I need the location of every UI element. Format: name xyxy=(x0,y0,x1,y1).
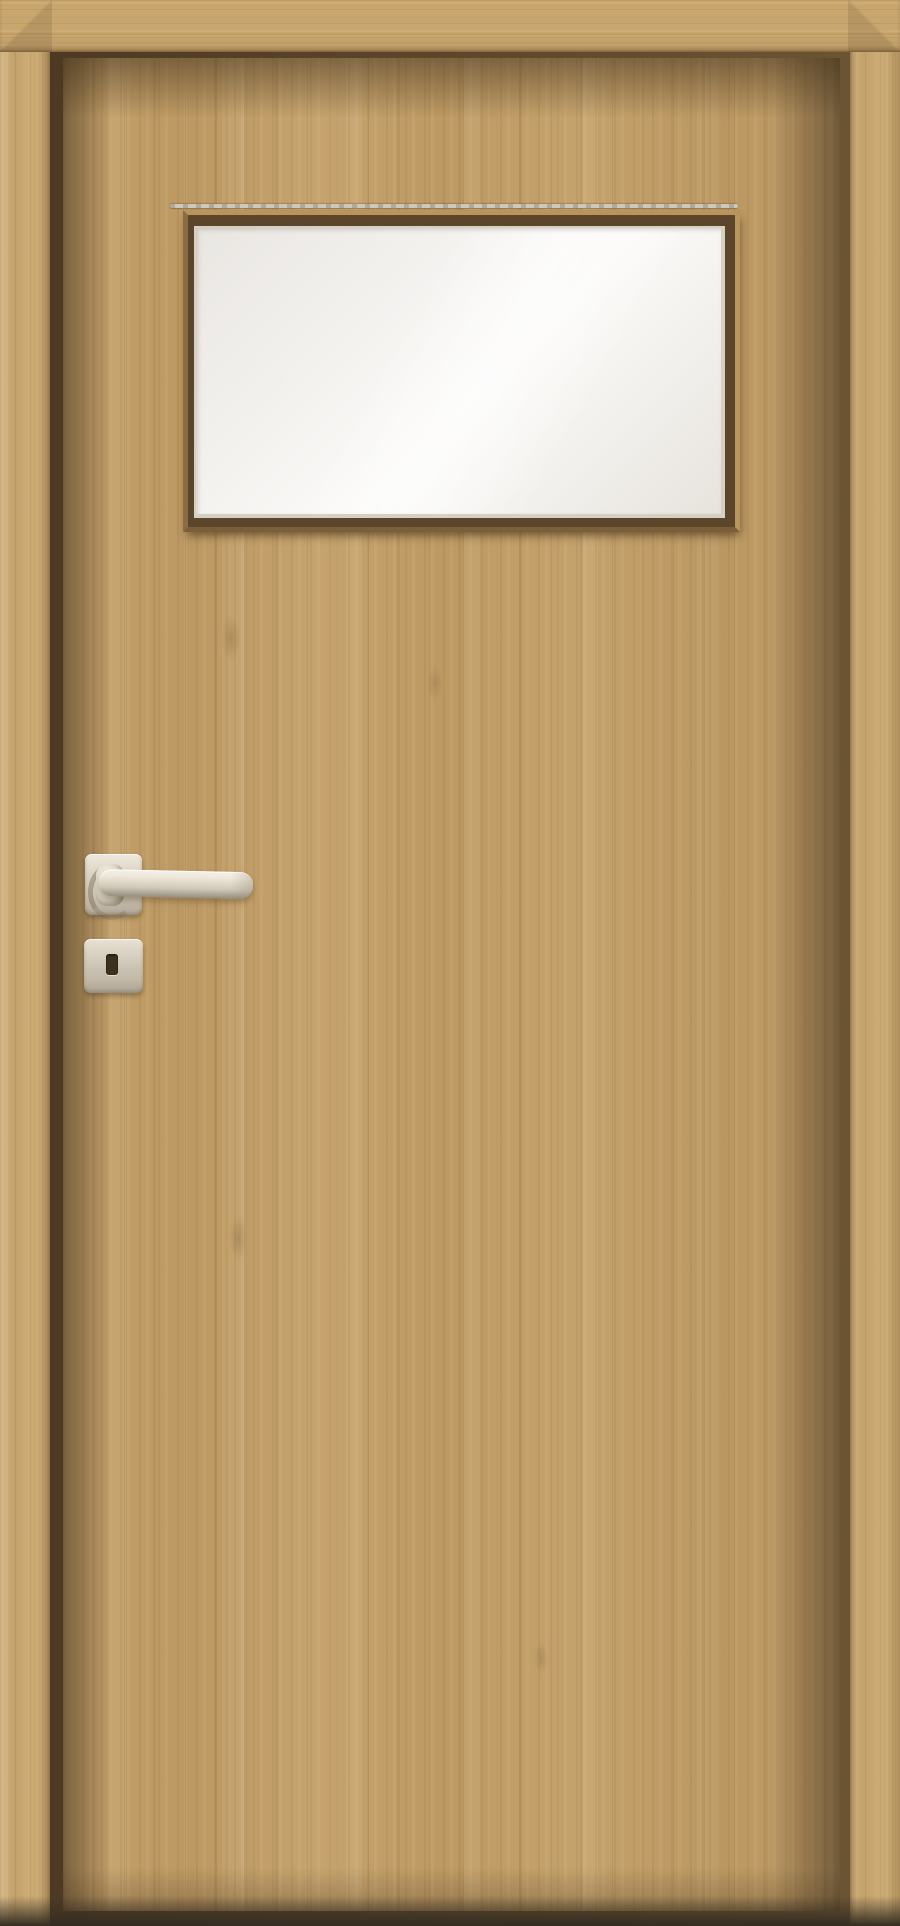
keyhole xyxy=(106,954,118,975)
door-handle-lever xyxy=(99,869,254,899)
door-frame-right xyxy=(850,0,900,1926)
decorative-groove xyxy=(170,204,738,208)
key-escutcheon xyxy=(84,939,143,993)
door-frame-top xyxy=(0,0,900,52)
door-frame-left xyxy=(0,0,50,1926)
door-product-photo xyxy=(0,0,900,1926)
frosted-glass-panel xyxy=(194,226,725,518)
glazing-frame xyxy=(183,210,740,532)
floor-shadow xyxy=(0,1896,900,1926)
